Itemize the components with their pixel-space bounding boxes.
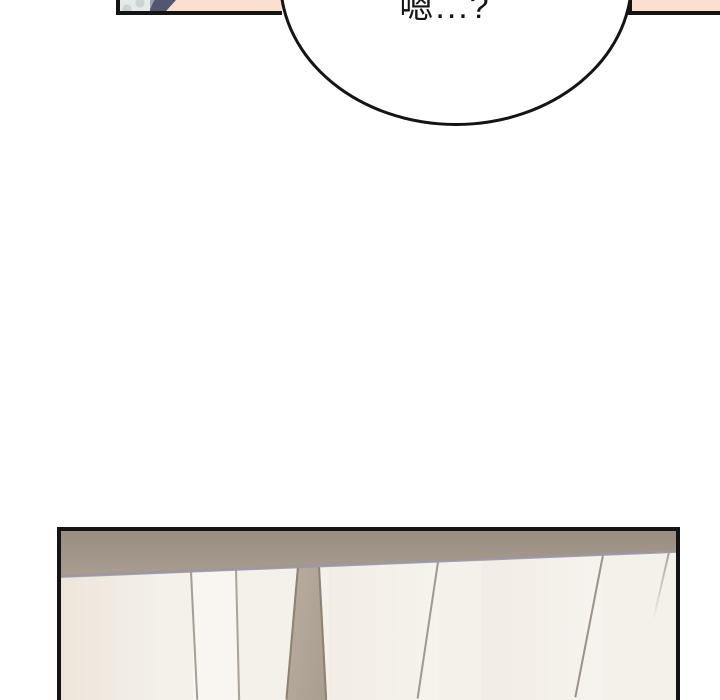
door-shading-streak xyxy=(61,569,193,700)
wardrobe-scene xyxy=(61,531,676,700)
dark-clothing-fragment xyxy=(150,0,176,11)
gray-curly-hair-fragment xyxy=(120,0,151,11)
door-seam-line-fading xyxy=(652,552,670,621)
door-shading-streak xyxy=(481,553,603,700)
top-panel-fragment-right xyxy=(628,0,720,15)
comic-page: 嗯...? xyxy=(0,0,720,700)
door-shading-streak xyxy=(329,563,439,700)
top-panel-fragment-left xyxy=(116,0,282,15)
speech-bubble-text: 嗯...? xyxy=(280,0,610,26)
bottom-panel xyxy=(57,527,680,700)
door-shading-streak xyxy=(193,569,237,700)
